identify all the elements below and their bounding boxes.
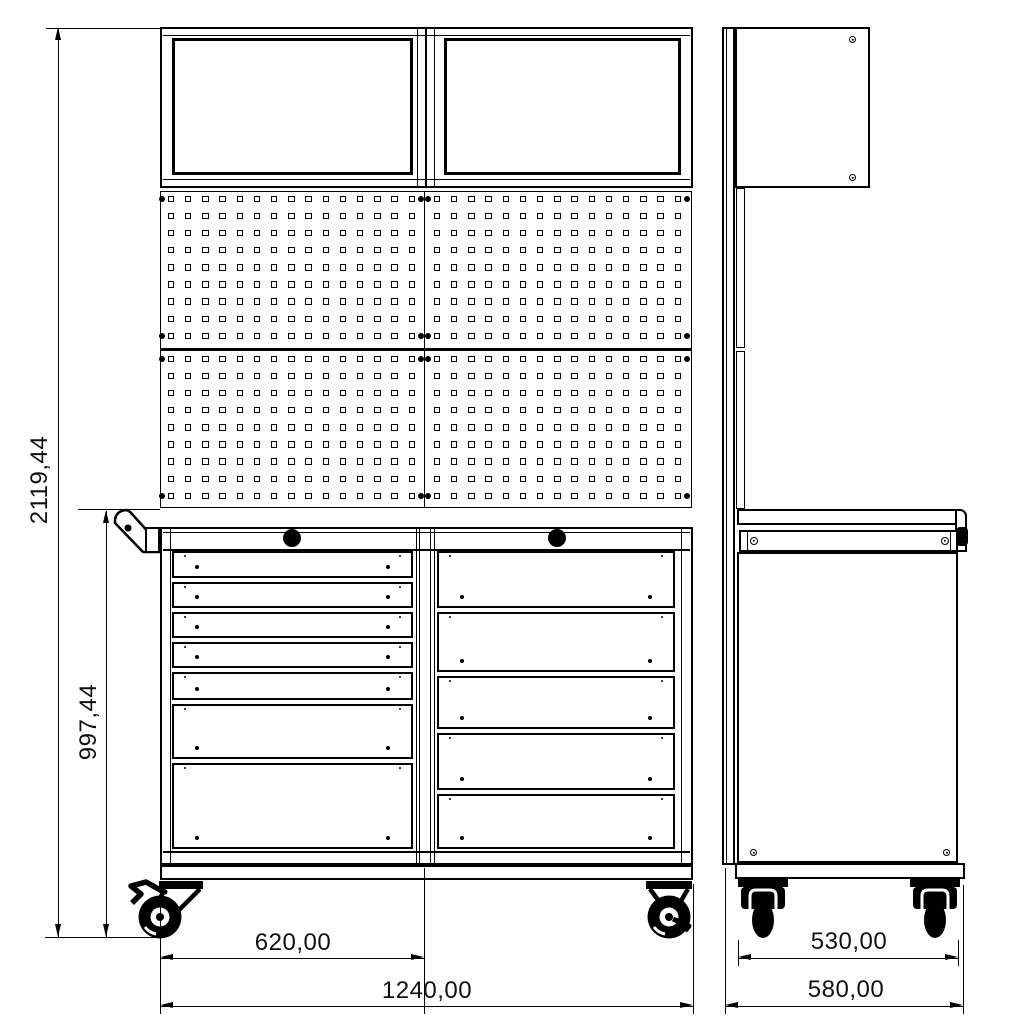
pegboard-hole: [503, 424, 509, 430]
pegboard-hole: [357, 316, 363, 322]
pegboard-hole: [185, 441, 191, 447]
pegboard-hole: [485, 333, 491, 339]
pegboard-hole: [391, 441, 397, 447]
pegboard-fastener-dot: [684, 196, 690, 202]
pegboard-hole: [451, 424, 457, 430]
pegboard-hole: [357, 407, 363, 413]
pegboard-hole: [305, 441, 311, 447]
pegboard-hole: [323, 458, 329, 464]
pegboard-hole: [554, 458, 560, 464]
pegboard-hole: [623, 213, 629, 219]
pegboard-hole: [571, 476, 577, 482]
pegboard-hole: [571, 230, 577, 236]
pegboard-hole: [520, 390, 526, 396]
pegboard-hole: [357, 390, 363, 396]
pegboard-hole: [271, 407, 277, 413]
pegboard-fastener-dot: [425, 333, 431, 339]
pegboard-hole: [357, 264, 363, 270]
pegboard-hole: [237, 493, 243, 499]
pegboard-hole: [374, 373, 380, 379]
pegboard-hole: [391, 407, 397, 413]
pegboard-hole: [357, 424, 363, 430]
pegboard-fastener-dot: [425, 356, 431, 362]
pegboard-hole: [675, 493, 681, 499]
pegboard-hole: [589, 230, 595, 236]
pegboard-hole: [606, 390, 612, 396]
pegboard-hole: [537, 298, 543, 304]
pegboard-hole: [219, 264, 225, 270]
pegboard-hole: [185, 230, 191, 236]
pegboard-hole: [185, 316, 191, 322]
pegboard-hole: [374, 476, 380, 482]
pegboard-hole: [520, 441, 526, 447]
pegboard-hole: [305, 493, 311, 499]
pegboard-hole: [657, 373, 663, 379]
pegboard-hole: [237, 356, 243, 362]
pegboard-hole: [185, 390, 191, 396]
pegboard-hole: [237, 458, 243, 464]
pegboard-hole: [640, 458, 646, 464]
pegboard-hole: [374, 424, 380, 430]
pegboard-hole: [254, 264, 260, 270]
pegboard-hole: [340, 356, 346, 362]
pegboard-hole: [340, 247, 346, 253]
pegboard-hole: [537, 373, 543, 379]
pegboard-hole: [451, 373, 457, 379]
pegboard-hole: [409, 230, 415, 236]
pegboard-hole: [340, 333, 346, 339]
pegboard-hole: [451, 298, 457, 304]
pegboard-hole: [485, 264, 491, 270]
pegboard-hole: [391, 298, 397, 304]
pegboard-hole: [288, 230, 294, 236]
pegboard-hole: [340, 390, 346, 396]
pegboard-hole: [237, 316, 243, 322]
pegboard-hole: [323, 390, 329, 396]
pegboard-hole: [554, 373, 560, 379]
pegboard-hole: [168, 213, 174, 219]
pegboard-hole: [485, 316, 491, 322]
pegboard-hole: [537, 458, 543, 464]
pegboard-hole: [374, 230, 380, 236]
pegboard-hole: [391, 264, 397, 270]
pegboard-hole: [374, 458, 380, 464]
pegboard-hole: [571, 213, 577, 219]
pegboard-hole: [503, 441, 509, 447]
pegboard-hole: [675, 458, 681, 464]
pegboard-hole: [640, 196, 646, 202]
pegboard-hole: [409, 458, 415, 464]
pegboard-hole: [185, 333, 191, 339]
pegboard-hole: [219, 458, 225, 464]
pegboard-hole: [391, 476, 397, 482]
pegboard-hole: [219, 476, 225, 482]
pegboard-hole: [657, 458, 663, 464]
pegboard-hole: [503, 230, 509, 236]
pegboard-hole: [571, 298, 577, 304]
pegboard-hole: [451, 333, 457, 339]
pegboard-hole: [485, 373, 491, 379]
pegboard-hole: [571, 493, 577, 499]
pegboard-hole: [503, 264, 509, 270]
pegboard-fastener-dot: [684, 356, 690, 362]
pegboard-hole: [288, 196, 294, 202]
drawer-front: [172, 763, 413, 849]
pegboard-hole: [185, 476, 191, 482]
pegboard-hole: [288, 356, 294, 362]
pegboard-hole: [271, 390, 277, 396]
pegboard-hole: [485, 441, 491, 447]
pegboard-hole: [606, 264, 612, 270]
pegboard-hole: [640, 247, 646, 253]
pegboard-hole: [589, 316, 595, 322]
pegboard-hole: [202, 196, 208, 202]
pegboard-hole: [202, 373, 208, 379]
pegboard-fastener-dot: [418, 333, 424, 339]
pegboard-hole: [288, 476, 294, 482]
pegboard-hole: [606, 196, 612, 202]
pegboard-hole: [623, 441, 629, 447]
pegboard-hole: [468, 247, 474, 253]
pegboard-hole: [589, 441, 595, 447]
pegboard-hole: [451, 196, 457, 202]
pegboard-hole: [640, 424, 646, 430]
pegboard-hole: [202, 213, 208, 219]
pegboard-hole: [434, 390, 440, 396]
pegboard-hole: [606, 458, 612, 464]
pegboard-hole: [219, 356, 225, 362]
pegboard-hole: [589, 298, 595, 304]
pegboard-hole: [468, 476, 474, 482]
pegboard-hole: [589, 333, 595, 339]
pegboard-hole: [357, 196, 363, 202]
pegboard-hole: [520, 476, 526, 482]
pegboard-fastener-dot: [159, 493, 165, 499]
pegboard-hole: [288, 493, 294, 499]
pegboard-hole: [237, 476, 243, 482]
pegboard-hole: [409, 333, 415, 339]
pegboard-hole: [468, 373, 474, 379]
pegboard-hole: [468, 316, 474, 322]
pegboard-hole: [323, 213, 329, 219]
pegboard-hole: [675, 264, 681, 270]
pegboard-hole: [357, 441, 363, 447]
pegboard-hole: [537, 196, 543, 202]
pegboard-hole: [288, 298, 294, 304]
pegboard-hole: [168, 476, 174, 482]
pegboard-hole: [589, 373, 595, 379]
pegboard-hole: [219, 424, 225, 430]
pegboard-hole: [675, 424, 681, 430]
pegboard-hole: [520, 493, 526, 499]
pegboard-hole: [451, 281, 457, 287]
pegboard-hole: [254, 196, 260, 202]
pegboard-hole: [340, 230, 346, 236]
pegboard-hole: [451, 264, 457, 270]
pegboard-hole: [409, 441, 415, 447]
pegboard-hole: [520, 281, 526, 287]
pegboard-hole: [202, 356, 208, 362]
pegboard-hole: [168, 441, 174, 447]
pegboard-hole: [202, 316, 208, 322]
pegboard-hole: [657, 213, 663, 219]
pegboard-hole: [340, 476, 346, 482]
pegboard-hole: [305, 458, 311, 464]
pegboard-hole: [571, 264, 577, 270]
pegboard-hole: [451, 458, 457, 464]
pegboard-hole: [168, 458, 174, 464]
pegboard-hole: [271, 333, 277, 339]
pegboard-hole: [606, 298, 612, 304]
pegboard-hole: [520, 230, 526, 236]
pegboard-hole: [623, 458, 629, 464]
pegboard-hole: [185, 213, 191, 219]
pegboard-hole: [323, 476, 329, 482]
drawer-front: [437, 733, 675, 790]
pegboard-hole: [657, 316, 663, 322]
pegboard-hole: [554, 213, 560, 219]
pegboard-hole: [537, 424, 543, 430]
pegboard-hole: [340, 196, 346, 202]
pegboard-hole: [606, 356, 612, 362]
pegboard-hole: [288, 316, 294, 322]
pegboard-hole: [640, 476, 646, 482]
drawer-front: [172, 672, 413, 700]
pegboard-hole: [202, 264, 208, 270]
pegboard-hole: [305, 373, 311, 379]
pegboard-hole: [434, 476, 440, 482]
pegboard-hole: [537, 333, 543, 339]
pegboard-hole: [485, 298, 491, 304]
pegboard-fastener-dot: [159, 196, 165, 202]
pegboard-hole: [623, 316, 629, 322]
pegboard-hole: [485, 493, 491, 499]
pegboard-fastener-dot: [159, 333, 165, 339]
pegboard-hole: [323, 264, 329, 270]
pegboard-hole: [589, 281, 595, 287]
pegboard-hole: [271, 281, 277, 287]
pegboard-hole: [503, 196, 509, 202]
pegboard-hole: [168, 424, 174, 430]
pegboard-hole: [675, 333, 681, 339]
pegboard-hole: [271, 196, 277, 202]
pegboard-hole: [657, 196, 663, 202]
pegboard-hole: [374, 196, 380, 202]
pegboard-hole: [468, 493, 474, 499]
pegboard-hole: [288, 264, 294, 270]
pegboard-hole: [554, 247, 560, 253]
pegboard-hole: [485, 356, 491, 362]
pegboard-hole: [305, 356, 311, 362]
pegboard-hole: [185, 196, 191, 202]
pegboard-hole: [554, 390, 560, 396]
pegboard-hole: [451, 407, 457, 413]
pegboard-hole: [237, 441, 243, 447]
pegboard-hole: [357, 493, 363, 499]
pegboard-hole: [168, 316, 174, 322]
pegboard-hole: [219, 373, 225, 379]
pegboard-hole: [409, 213, 415, 219]
pegboard-hole: [237, 390, 243, 396]
pegboard-hole: [657, 407, 663, 413]
pegboard-hole: [185, 493, 191, 499]
pegboard-hole: [520, 213, 526, 219]
pegboard-hole: [468, 213, 474, 219]
pegboard-hole: [434, 407, 440, 413]
pegboard-hole: [340, 441, 346, 447]
pegboard-hole: [271, 316, 277, 322]
pegboard-hole: [168, 356, 174, 362]
pegboard-hole: [202, 441, 208, 447]
pegboard-hole: [237, 196, 243, 202]
pegboard-hole: [271, 373, 277, 379]
pegboard-hole: [305, 476, 311, 482]
pegboard-hole: [589, 196, 595, 202]
pegboard-hole: [468, 356, 474, 362]
pegboard-hole: [451, 476, 457, 482]
pegboard-hole: [168, 264, 174, 270]
pegboard-hole: [468, 390, 474, 396]
pegboard-hole: [623, 281, 629, 287]
pegboard-hole: [485, 247, 491, 253]
pegboard-hole: [485, 230, 491, 236]
pegboard-hole: [340, 298, 346, 304]
pegboard-hole: [340, 424, 346, 430]
pegboard-hole: [409, 493, 415, 499]
pegboard-fastener-dot: [418, 493, 424, 499]
drawer-front: [437, 612, 675, 672]
pegboard-hole: [374, 333, 380, 339]
pegboard-hole: [305, 213, 311, 219]
pegboard-hole: [305, 247, 311, 253]
pegboard-hole: [571, 356, 577, 362]
pegboard-hole: [202, 298, 208, 304]
pegboard-hole: [571, 333, 577, 339]
pegboard-hole: [391, 281, 397, 287]
pegboard-hole: [391, 390, 397, 396]
pegboard-hole: [451, 441, 457, 447]
pegboard-hole: [675, 316, 681, 322]
pegboard-hole: [520, 458, 526, 464]
pegboard-hole: [657, 424, 663, 430]
pegboard-hole: [657, 476, 663, 482]
pegboard-hole: [503, 458, 509, 464]
pegboard-hole: [374, 390, 380, 396]
pegboard-hole: [323, 316, 329, 322]
pegboard-hole: [571, 247, 577, 253]
pegboard-hole: [571, 373, 577, 379]
pegboard-hole: [305, 316, 311, 322]
pegboard-hole: [202, 424, 208, 430]
generated-detail-layer: [0, 0, 1024, 1024]
pegboard-hole: [305, 281, 311, 287]
pegboard-hole: [219, 196, 225, 202]
pegboard-hole: [254, 316, 260, 322]
pegboard-hole: [434, 424, 440, 430]
pegboard-hole: [237, 333, 243, 339]
pegboard-hole: [288, 373, 294, 379]
pegboard-hole: [434, 316, 440, 322]
pegboard-hole: [451, 316, 457, 322]
pegboard-hole: [237, 230, 243, 236]
pegboard-hole: [571, 424, 577, 430]
pegboard-hole: [254, 493, 260, 499]
pegboard-hole: [606, 476, 612, 482]
pegboard-hole: [537, 281, 543, 287]
pegboard-hole: [657, 441, 663, 447]
pegboard-hole: [254, 476, 260, 482]
pegboard-hole: [520, 264, 526, 270]
pegboard-hole: [168, 333, 174, 339]
pegboard-hole: [606, 424, 612, 430]
pegboard-hole: [357, 373, 363, 379]
pegboard-hole: [323, 298, 329, 304]
pegboard-hole: [606, 441, 612, 447]
pegboard-hole: [357, 247, 363, 253]
pegboard-hole: [623, 230, 629, 236]
pegboard-hole: [288, 458, 294, 464]
pegboard-hole: [503, 390, 509, 396]
pegboard-hole: [571, 316, 577, 322]
pegboard-hole: [305, 424, 311, 430]
pegboard-hole: [657, 281, 663, 287]
pegboard-hole: [554, 333, 560, 339]
drawer-front: [172, 642, 413, 668]
pegboard-hole: [503, 373, 509, 379]
pegboard-hole: [451, 213, 457, 219]
pegboard-hole: [357, 213, 363, 219]
pegboard-hole: [485, 213, 491, 219]
pegboard-hole: [254, 356, 260, 362]
pegboard-hole: [485, 390, 491, 396]
pegboard-hole: [254, 333, 260, 339]
pegboard-hole: [657, 493, 663, 499]
pegboard-hole: [554, 493, 560, 499]
pegboard-hole: [657, 333, 663, 339]
pegboard-hole: [237, 373, 243, 379]
pegboard-hole: [323, 407, 329, 413]
pegboard-fastener-dot: [159, 356, 165, 362]
pegboard-hole: [391, 373, 397, 379]
pegboard-hole: [520, 407, 526, 413]
pegboard-hole: [675, 247, 681, 253]
pegboard-hole: [451, 247, 457, 253]
pegboard-hole: [323, 424, 329, 430]
pegboard-hole: [623, 196, 629, 202]
pegboard-hole: [409, 281, 415, 287]
pegboard-hole: [537, 247, 543, 253]
pegboard-hole: [623, 333, 629, 339]
pegboard-hole: [254, 230, 260, 236]
pegboard-hole: [357, 298, 363, 304]
pegboard-hole: [374, 407, 380, 413]
pegboard-hole: [657, 356, 663, 362]
drawer-front: [172, 612, 413, 638]
pegboard-hole: [185, 424, 191, 430]
pegboard-hole: [237, 424, 243, 430]
pegboard-hole: [485, 458, 491, 464]
pegboard-hole: [219, 493, 225, 499]
pegboard-hole: [340, 316, 346, 322]
pegboard-hole: [185, 298, 191, 304]
pegboard-hole: [434, 264, 440, 270]
pegboard-hole: [554, 264, 560, 270]
pegboard-hole: [271, 441, 277, 447]
pegboard-hole: [409, 298, 415, 304]
pegboard-hole: [571, 390, 577, 396]
pegboard-hole: [185, 281, 191, 287]
pegboard-hole: [589, 493, 595, 499]
